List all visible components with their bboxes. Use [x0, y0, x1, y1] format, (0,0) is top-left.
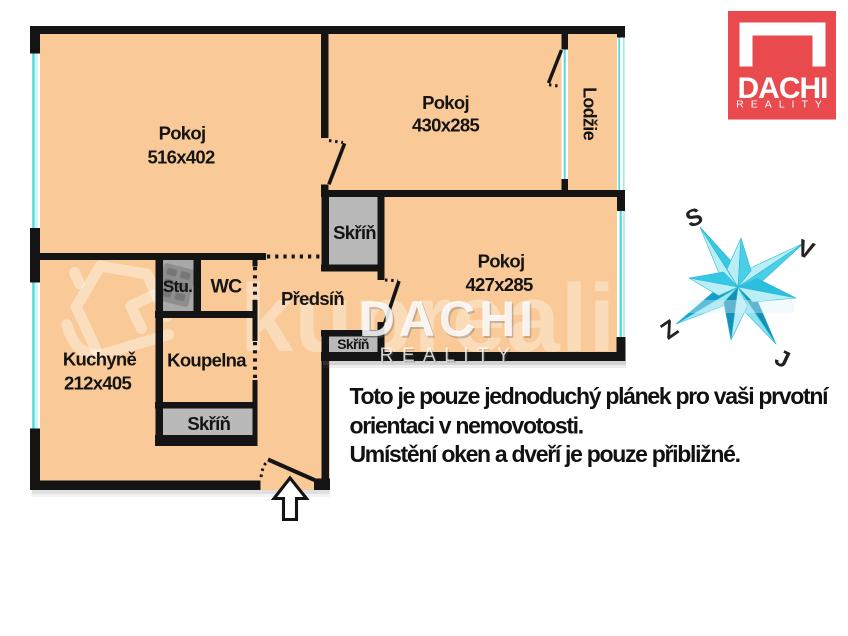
- svg-text:REALITY: REALITY: [380, 345, 519, 366]
- svg-text:Pokoj: Pokoj: [422, 92, 469, 113]
- svg-text:Předsíň: Předsíň: [281, 288, 344, 309]
- svg-text:Koupelna: Koupelna: [167, 350, 247, 371]
- svg-text:430x285: 430x285: [412, 115, 480, 136]
- svg-text:Toto je pouze jednoduchý pláne: Toto je pouze jednoduchý plánek pro vaši…: [350, 383, 831, 409]
- svg-text:Skříň: Skříň: [187, 413, 230, 434]
- svg-text:Skříň: Skříň: [333, 222, 376, 243]
- svg-text:516x402: 516x402: [147, 147, 215, 168]
- svg-text:DACHI: DACHI: [359, 291, 537, 347]
- svg-text:Kuchyně: Kuchyně: [63, 349, 137, 370]
- svg-text:orientaci v nemovotosti.: orientaci v nemovotosti.: [350, 413, 583, 439]
- svg-text:REALITY: REALITY: [736, 99, 829, 111]
- svg-text:212x405: 212x405: [64, 373, 132, 394]
- svg-text:Pokoj: Pokoj: [159, 123, 206, 144]
- svg-text:Umístění oken a dveří je pouze: Umístění oken a dveří je pouze přibližné…: [350, 441, 740, 467]
- svg-text:WC: WC: [210, 276, 242, 298]
- svg-text:Pokoj: Pokoj: [478, 251, 525, 272]
- svg-text:Stu.: Stu.: [163, 277, 192, 296]
- svg-text:Lodžie: Lodžie: [580, 87, 600, 140]
